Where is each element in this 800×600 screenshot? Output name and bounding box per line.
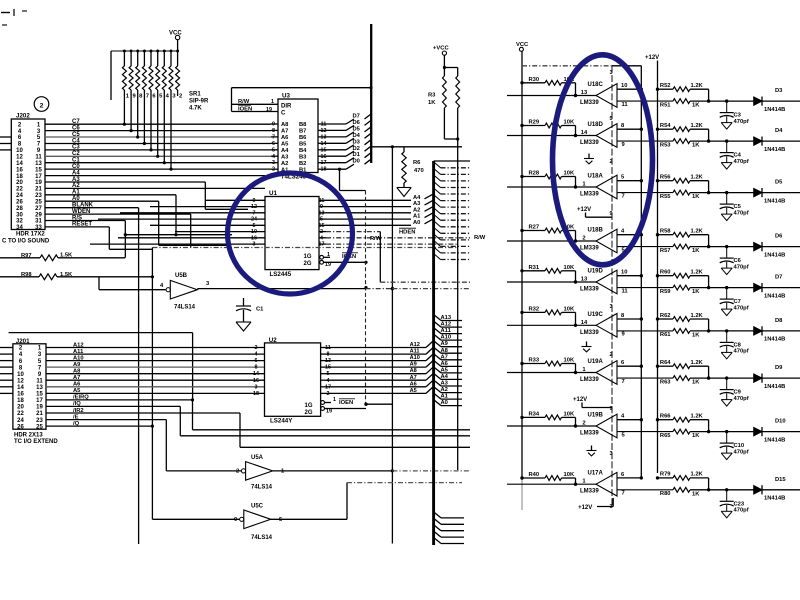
svg-text:470pf: 470pf [734, 349, 749, 355]
svg-text:C3: C3 [72, 145, 80, 151]
svg-text:10K: 10K [564, 358, 575, 364]
svg-text:74LS14: 74LS14 [174, 305, 196, 311]
svg-text:+12V: +12V [577, 207, 591, 213]
svg-text:15: 15 [36, 392, 43, 398]
svg-text:A5: A5 [73, 388, 81, 394]
svg-text:19: 19 [36, 405, 43, 411]
svg-text:D6: D6 [775, 234, 783, 240]
svg-text:1.5K: 1.5K [60, 253, 73, 259]
svg-text:D0: D0 [353, 159, 360, 165]
svg-text:R40: R40 [529, 472, 540, 478]
svg-text:C1: C1 [72, 158, 80, 164]
svg-text:R79: R79 [660, 472, 671, 478]
svg-text:A0: A0 [413, 220, 420, 226]
svg-text:19: 19 [325, 262, 331, 268]
svg-text:7: 7 [272, 134, 275, 140]
svg-text:12: 12 [321, 128, 327, 134]
svg-text:C7: C7 [72, 119, 80, 125]
svg-text:18: 18 [253, 391, 259, 397]
svg-text:7: 7 [622, 379, 625, 385]
svg-text:R30: R30 [529, 77, 540, 83]
svg-text:1N414B: 1N414B [764, 337, 785, 343]
svg-text:25: 25 [36, 424, 43, 430]
svg-text:1K: 1K [428, 100, 436, 106]
svg-text:9: 9 [320, 204, 323, 210]
svg-text:D8: D8 [775, 318, 783, 324]
svg-text:2: 2 [272, 167, 275, 173]
svg-text:1N414B: 1N414B [764, 437, 785, 443]
svg-text:R63: R63 [660, 379, 671, 385]
svg-text:C8: C8 [734, 342, 742, 348]
svg-text:16: 16 [251, 235, 257, 241]
svg-text:R56: R56 [660, 175, 671, 181]
svg-text:/IQ: /IQ [73, 401, 81, 407]
svg-text:D10: D10 [775, 419, 786, 425]
svg-text:10: 10 [16, 148, 23, 154]
svg-text:14: 14 [321, 141, 327, 147]
svg-text:470pf: 470pf [734, 210, 749, 216]
svg-text:14: 14 [16, 161, 23, 167]
svg-text:U19B: U19B [588, 413, 604, 419]
svg-text:10: 10 [251, 229, 257, 235]
svg-text:A7: A7 [73, 375, 80, 381]
svg-text:/E: /E [73, 414, 79, 420]
svg-text:470pf: 470pf [734, 264, 749, 270]
svg-text:B7: B7 [299, 129, 306, 135]
svg-text:LM339: LM339 [580, 192, 599, 198]
svg-text:+12V: +12V [645, 55, 659, 61]
svg-text:30: 30 [16, 212, 23, 218]
svg-text:3: 3 [272, 160, 275, 166]
svg-text:17: 17 [321, 160, 327, 166]
svg-text:15: 15 [319, 223, 325, 229]
svg-text:5: 5 [272, 147, 275, 153]
svg-text:14: 14 [581, 130, 588, 136]
svg-text:A7: A7 [281, 129, 288, 135]
svg-text:A6: A6 [281, 135, 289, 141]
svg-text:10K: 10K [564, 472, 575, 478]
svg-text:1.2K: 1.2K [691, 175, 704, 181]
svg-text:A9: A9 [441, 341, 449, 347]
svg-text:R64: R64 [660, 360, 671, 366]
svg-text:1N414B: 1N414B [764, 198, 785, 204]
svg-text:C6: C6 [72, 125, 80, 131]
svg-text:B6: B6 [299, 135, 307, 141]
svg-text:9: 9 [253, 198, 256, 204]
svg-text:13: 13 [321, 134, 327, 140]
svg-text:C TO I/O SOUND: C TO I/O SOUND [2, 239, 50, 245]
svg-text:1.2K: 1.2K [691, 414, 704, 420]
svg-text:2: 2 [320, 229, 323, 235]
svg-text:D7: D7 [775, 275, 782, 281]
svg-text:R33: R33 [529, 358, 540, 364]
svg-text:R60: R60 [660, 270, 671, 276]
svg-text:A6: A6 [410, 381, 417, 387]
svg-text:U5A: U5A [251, 455, 264, 461]
svg-text:A3: A3 [281, 154, 289, 160]
svg-text:1G: 1G [305, 403, 313, 409]
svg-text:HDEN: HDEN [399, 230, 415, 236]
svg-text:+VCC: +VCC [433, 46, 449, 52]
svg-text:RESET: RESET [72, 222, 92, 228]
svg-text:74LS14: 74LS14 [251, 535, 273, 541]
svg-text:10K: 10K [564, 412, 575, 418]
svg-text:A6: A6 [441, 361, 449, 367]
svg-text:LM339: LM339 [580, 100, 599, 106]
svg-text:1.2K: 1.2K [691, 360, 704, 366]
svg-text:A8: A8 [73, 369, 81, 375]
svg-text:20: 20 [16, 180, 23, 186]
svg-text:A2: A2 [441, 387, 448, 393]
svg-text:IOEN: IOEN [238, 107, 252, 113]
svg-text:U5C: U5C [251, 504, 264, 510]
svg-text:C: C [281, 111, 286, 117]
svg-text:R52: R52 [660, 83, 671, 89]
svg-text:7: 7 [622, 491, 625, 497]
svg-text:1N414B: 1N414B [764, 293, 785, 299]
svg-text:1K: 1K [692, 332, 700, 338]
svg-text:C0: C0 [72, 164, 80, 170]
svg-text:7: 7 [622, 193, 625, 199]
svg-text:A4: A4 [441, 374, 449, 380]
svg-text:A3: A3 [413, 201, 421, 207]
svg-text:R/W: R/W [238, 99, 250, 105]
svg-text:22: 22 [16, 187, 23, 193]
svg-text:A9: A9 [410, 362, 417, 368]
svg-text:10: 10 [621, 270, 627, 276]
svg-text:4.7K: 4.7K [189, 106, 202, 112]
svg-text:D15: D15 [775, 477, 786, 483]
svg-text:U1: U1 [269, 190, 277, 197]
svg-text:A4: A4 [413, 195, 421, 201]
svg-text:1N414B: 1N414B [764, 252, 785, 258]
svg-text:5: 5 [320, 217, 323, 223]
svg-text:A4: A4 [281, 148, 289, 154]
svg-text:17: 17 [319, 242, 325, 248]
svg-text:2: 2 [610, 159, 613, 165]
svg-text:21: 21 [36, 411, 43, 417]
svg-text:C1: C1 [256, 307, 264, 313]
svg-text:D9: D9 [775, 365, 783, 371]
svg-text:1: 1 [327, 252, 330, 258]
svg-text:4: 4 [255, 352, 258, 358]
svg-text:R80: R80 [660, 491, 671, 497]
svg-text:1N414B: 1N414B [764, 384, 785, 390]
svg-text:11: 11 [622, 102, 629, 108]
svg-text:10K: 10K [564, 307, 575, 313]
svg-text:C2: C2 [72, 151, 80, 157]
svg-text:C10: C10 [734, 443, 745, 449]
svg-text:R59: R59 [660, 289, 671, 295]
svg-text:23: 23 [35, 193, 42, 199]
svg-text:R34: R34 [529, 412, 540, 418]
svg-text:U5B: U5B [175, 273, 188, 279]
svg-text:+12V: +12V [573, 397, 587, 403]
svg-text:2: 2 [582, 236, 585, 242]
svg-text:23: 23 [36, 418, 43, 424]
svg-text:A13: A13 [441, 315, 452, 321]
svg-text:12: 12 [17, 378, 24, 384]
svg-text:10: 10 [621, 83, 627, 89]
svg-text:R28: R28 [529, 171, 540, 177]
svg-text:13: 13 [581, 277, 588, 283]
svg-text:A10: A10 [410, 355, 420, 361]
svg-text:A12: A12 [410, 342, 420, 348]
svg-text:R/S: R/S [72, 215, 82, 221]
svg-text:1.2K: 1.2K [691, 123, 704, 129]
svg-text:A0: A0 [72, 196, 80, 202]
svg-text:LS244Y: LS244Y [270, 417, 293, 424]
svg-text:J201: J201 [16, 338, 30, 345]
svg-text:9: 9 [272, 122, 275, 128]
svg-text:3: 3 [610, 451, 613, 457]
svg-text:24: 24 [251, 217, 257, 223]
svg-text:1K: 1K [692, 491, 700, 497]
svg-text:24: 24 [16, 193, 23, 199]
svg-text:C7: C7 [734, 299, 741, 305]
svg-text:U2: U2 [269, 337, 277, 344]
svg-text:1K: 1K [692, 248, 700, 254]
svg-text:C4: C4 [72, 138, 80, 144]
svg-text:17: 17 [35, 174, 42, 180]
svg-text:8: 8 [255, 365, 258, 371]
svg-text:9: 9 [610, 211, 613, 217]
svg-text:7: 7 [146, 94, 149, 100]
svg-text:A2: A2 [413, 207, 420, 213]
svg-text:18: 18 [17, 398, 24, 404]
svg-text:21: 21 [35, 187, 42, 193]
svg-text:74LS14: 74LS14 [251, 484, 273, 490]
svg-text:1K: 1K [692, 143, 700, 149]
svg-text:R53: R53 [660, 142, 671, 148]
svg-text:D7: D7 [353, 114, 360, 120]
svg-text:1N414B: 1N414B [764, 107, 785, 113]
svg-text:A11: A11 [410, 349, 420, 355]
svg-text:B2: B2 [299, 161, 306, 167]
svg-text:U19D: U19D [588, 269, 604, 275]
svg-text:32: 32 [16, 219, 23, 225]
svg-text:10K: 10K [564, 120, 575, 126]
svg-text:WDEN: WDEN [72, 209, 90, 215]
svg-text:16: 16 [253, 378, 259, 384]
svg-text:2: 2 [40, 102, 44, 109]
svg-text:10K: 10K [564, 265, 575, 271]
svg-text:B5: B5 [299, 142, 307, 148]
svg-text:16: 16 [17, 392, 24, 398]
svg-text:R29: R29 [529, 120, 540, 126]
svg-text:D4: D4 [775, 128, 783, 134]
svg-text:13: 13 [35, 161, 42, 167]
svg-text:D3: D3 [353, 139, 361, 145]
svg-text:J202: J202 [16, 113, 30, 120]
svg-text:C23: C23 [734, 501, 745, 507]
svg-text:B3: B3 [299, 154, 307, 160]
svg-text:LM339: LM339 [580, 330, 599, 336]
svg-text:11: 11 [35, 155, 42, 161]
svg-text:C4: C4 [734, 153, 742, 159]
svg-text:A5: A5 [410, 388, 417, 394]
svg-text:19: 19 [326, 409, 332, 415]
svg-text:22: 22 [17, 411, 24, 417]
svg-text:12: 12 [16, 155, 23, 161]
svg-text:1.2K: 1.2K [691, 270, 704, 276]
svg-text:D4: D4 [353, 133, 361, 139]
svg-text:LM339: LM339 [580, 246, 599, 252]
svg-text:A6: A6 [73, 382, 81, 388]
svg-text:A7: A7 [410, 375, 417, 381]
svg-text:D2: D2 [353, 146, 360, 152]
svg-text:U18A: U18A [588, 174, 604, 180]
svg-text:10K: 10K [564, 171, 575, 177]
svg-text:A4: A4 [72, 170, 80, 176]
svg-text:18: 18 [321, 167, 327, 173]
svg-text:A5: A5 [281, 142, 289, 148]
svg-text:TC I/O EXTEND: TC I/O EXTEND [14, 439, 58, 445]
svg-text:470pf: 470pf [734, 305, 749, 311]
svg-text:4: 4 [272, 154, 275, 160]
svg-text:R57: R57 [660, 248, 671, 254]
svg-text:14: 14 [253, 371, 259, 377]
svg-text:5: 5 [253, 223, 256, 229]
svg-text:17: 17 [36, 398, 43, 404]
svg-text:A12: A12 [73, 342, 84, 348]
svg-text:A0: A0 [441, 400, 448, 406]
svg-text:HDR 2X13: HDR 2X13 [14, 433, 43, 439]
svg-text:5: 5 [610, 116, 613, 122]
svg-text:1.2K: 1.2K [691, 83, 704, 89]
svg-text:A11: A11 [73, 349, 84, 355]
svg-text:470pf: 470pf [734, 396, 749, 402]
svg-text:A8: A8 [441, 348, 449, 354]
svg-text:1: 1 [271, 99, 274, 105]
svg-text:11: 11 [622, 288, 629, 294]
svg-text:R31: R31 [529, 265, 540, 271]
svg-text:BLANK: BLANK [72, 203, 94, 209]
svg-text:R97: R97 [21, 253, 32, 259]
svg-text:DIR: DIR [281, 104, 292, 110]
svg-text:33: 33 [35, 225, 42, 231]
svg-text:11: 11 [321, 122, 327, 128]
svg-text:16: 16 [16, 167, 23, 173]
svg-text:R/W: R/W [474, 235, 486, 241]
svg-text:U18B: U18B [588, 228, 604, 234]
svg-text:D5: D5 [353, 126, 361, 132]
svg-text:IOEN: IOEN [339, 400, 353, 406]
svg-text:HDR 17X2: HDR 17X2 [16, 232, 45, 238]
svg-text:A10: A10 [441, 335, 452, 341]
svg-text:2G: 2G [305, 410, 313, 416]
svg-text:D1: D1 [353, 152, 361, 158]
svg-text:2: 2 [610, 352, 613, 358]
svg-text:R3: R3 [428, 93, 436, 99]
svg-text:24: 24 [17, 418, 24, 424]
svg-text:3: 3 [255, 384, 258, 390]
svg-text:R62: R62 [660, 313, 671, 319]
svg-text:2G: 2G [304, 261, 312, 267]
svg-text:B4: B4 [299, 148, 307, 154]
svg-text:/Q: /Q [73, 421, 80, 427]
svg-text:LS2445: LS2445 [270, 271, 292, 278]
svg-text:31: 31 [35, 219, 42, 225]
svg-text:A8: A8 [281, 122, 289, 128]
svg-text:A10: A10 [73, 355, 84, 361]
svg-text:1N414B: 1N414B [764, 496, 785, 502]
svg-text:470pf: 470pf [734, 508, 749, 514]
svg-text:1: 1 [333, 397, 336, 403]
svg-text:3: 3 [610, 70, 613, 76]
svg-text:11: 11 [36, 378, 43, 384]
svg-text:26: 26 [16, 199, 23, 205]
svg-text:6: 6 [272, 141, 275, 147]
svg-text:R6: R6 [413, 160, 421, 166]
svg-text:R61: R61 [660, 332, 671, 338]
svg-text:29: 29 [35, 212, 42, 218]
svg-text:14: 14 [17, 385, 24, 391]
svg-text:2: 2 [236, 469, 239, 475]
svg-text:U18C: U18C [588, 82, 604, 88]
svg-text:470pf: 470pf [734, 159, 749, 165]
svg-text:7: 7 [253, 210, 256, 216]
svg-text:3: 3 [253, 242, 256, 248]
svg-text:19: 19 [35, 180, 42, 186]
svg-text:2: 2 [255, 345, 258, 351]
svg-text:10: 10 [17, 372, 24, 378]
svg-text:470pf: 470pf [734, 119, 749, 125]
svg-text:A1: A1 [413, 214, 421, 220]
svg-text:/IR2: /IR2 [73, 408, 84, 414]
svg-text:LM339: LM339 [580, 377, 599, 383]
svg-text:D3: D3 [775, 88, 783, 94]
svg-text:A3: A3 [72, 177, 80, 183]
svg-text:A3: A3 [441, 381, 449, 387]
svg-text:C3: C3 [734, 113, 742, 119]
svg-text:U17A: U17A [588, 471, 604, 477]
svg-text:R58: R58 [660, 229, 671, 235]
svg-text:25: 25 [35, 199, 42, 205]
svg-text:1G: 1G [304, 254, 312, 260]
svg-text:18: 18 [16, 174, 23, 180]
svg-text:U19A: U19A [588, 359, 604, 365]
svg-text:R66: R66 [660, 414, 671, 420]
svg-text:SR1: SR1 [189, 92, 201, 98]
svg-text:1K: 1K [692, 194, 700, 200]
svg-text:R98: R98 [21, 272, 32, 278]
svg-text:11: 11 [319, 198, 325, 204]
svg-text:A7: A7 [441, 354, 448, 360]
svg-text:R55: R55 [660, 194, 671, 200]
svg-text:19: 19 [266, 107, 272, 113]
svg-text:1N414B: 1N414B [764, 147, 785, 153]
svg-text:R51: R51 [660, 102, 671, 108]
svg-text:27: 27 [35, 206, 42, 212]
svg-text:+12V: +12V [578, 505, 592, 511]
svg-text:B8: B8 [299, 122, 307, 128]
svg-text:C6: C6 [734, 258, 742, 264]
svg-text:2: 2 [179, 94, 182, 100]
svg-text:LM339: LM339 [580, 431, 599, 437]
svg-text:A9: A9 [73, 362, 81, 368]
svg-text:1.5K: 1.5K [60, 272, 73, 278]
svg-text:15: 15 [35, 167, 42, 173]
svg-text:34: 34 [16, 225, 23, 231]
svg-text:13: 13 [581, 90, 588, 96]
svg-text:R32: R32 [529, 307, 540, 313]
svg-text:C5: C5 [72, 132, 80, 138]
svg-text:470: 470 [414, 168, 424, 174]
svg-text:C5: C5 [734, 204, 742, 210]
svg-text:C9: C9 [734, 390, 742, 396]
svg-text:4: 4 [320, 235, 323, 241]
